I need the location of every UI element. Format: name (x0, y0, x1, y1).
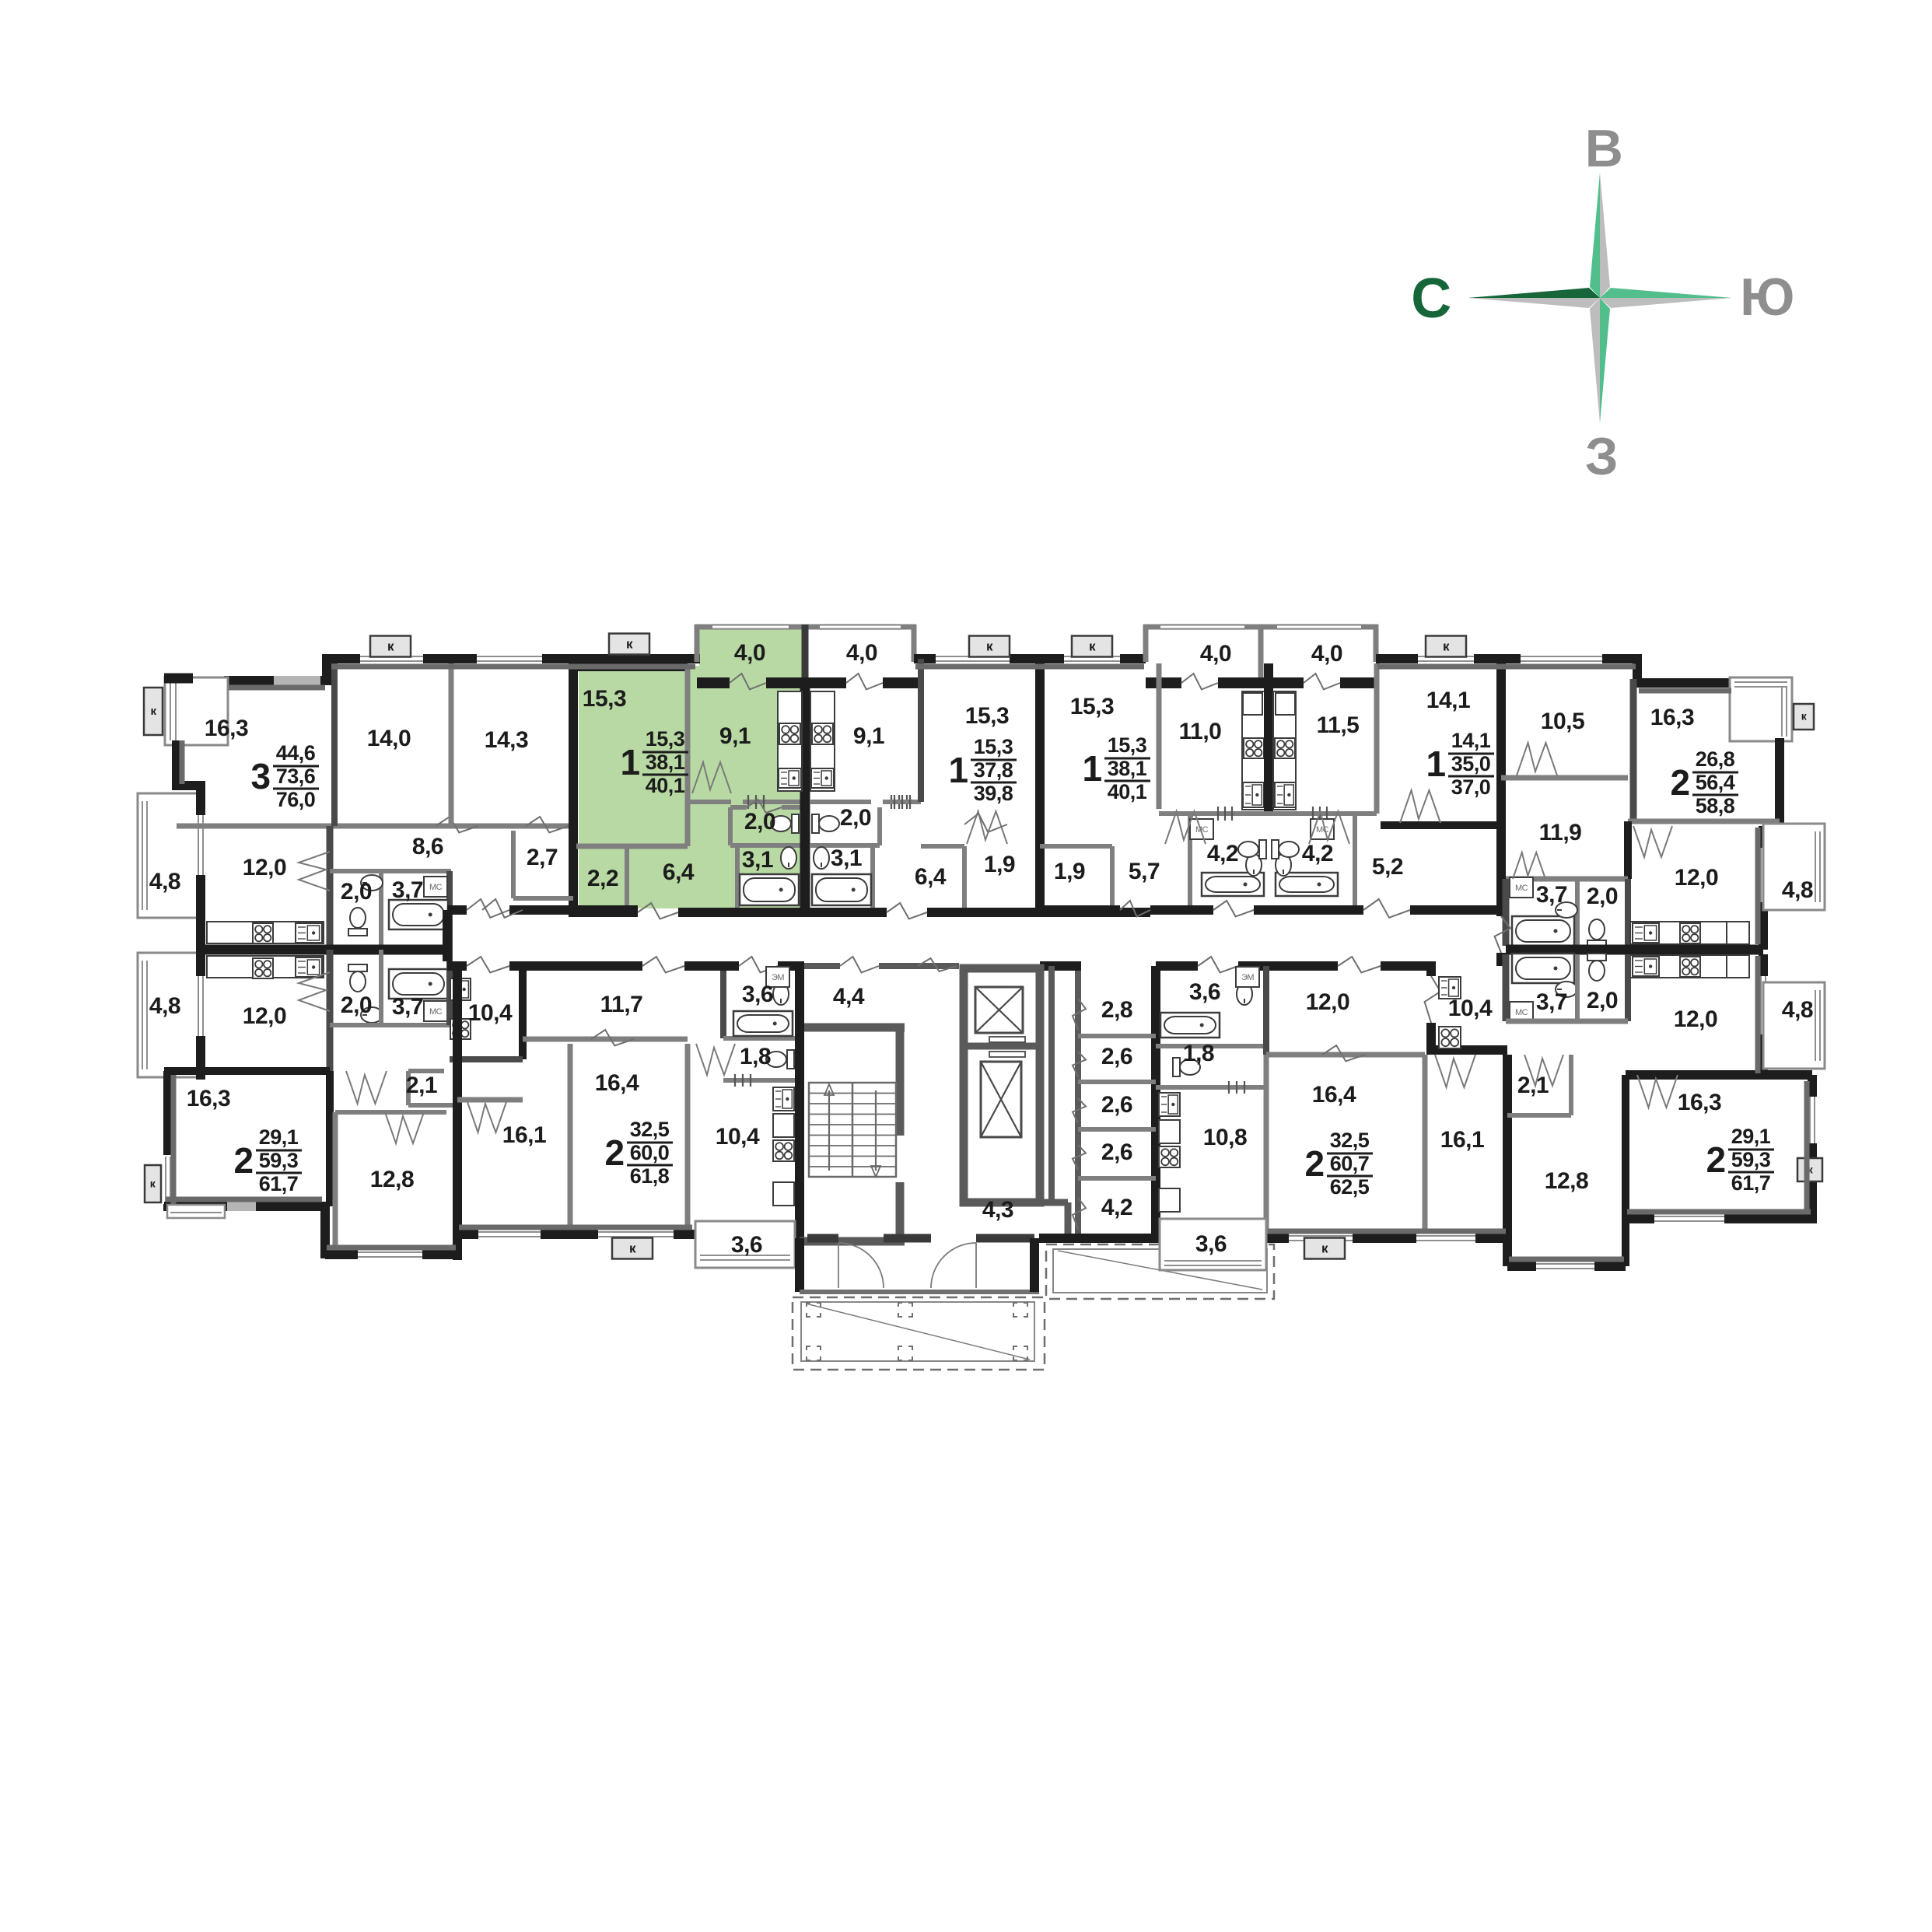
svg-text:1: 1 (948, 750, 968, 790)
svg-text:4,8: 4,8 (1782, 997, 1813, 1023)
svg-text:2,0: 2,0 (341, 992, 372, 1018)
svg-text:40,1: 40,1 (1108, 780, 1147, 803)
svg-text:2,6: 2,6 (1101, 1139, 1132, 1165)
svg-text:В: В (1585, 119, 1623, 178)
svg-text:2,1: 2,1 (1517, 1073, 1549, 1098)
svg-text:32,5: 32,5 (630, 1118, 670, 1141)
svg-text:3,6: 3,6 (731, 1232, 762, 1258)
svg-text:1,8: 1,8 (1183, 1041, 1214, 1066)
svg-text:МС: МС (1515, 1008, 1528, 1017)
svg-text:16,3: 16,3 (187, 1086, 230, 1111)
svg-text:2,6: 2,6 (1101, 1044, 1132, 1069)
svg-text:4,0: 4,0 (1311, 641, 1342, 667)
svg-text:2,0: 2,0 (744, 809, 775, 835)
svg-text:МС: МС (429, 883, 443, 892)
svg-text:к: к (629, 1241, 636, 1255)
svg-text:3: 3 (250, 756, 270, 796)
svg-text:3,6: 3,6 (742, 982, 773, 1007)
svg-text:61,7: 61,7 (259, 1172, 299, 1195)
svg-text:4,2: 4,2 (1101, 1195, 1132, 1220)
svg-text:9,1: 9,1 (719, 723, 751, 749)
svg-text:15,3: 15,3 (583, 686, 626, 712)
svg-text:10,4: 10,4 (716, 1124, 760, 1150)
svg-text:14,0: 14,0 (367, 726, 411, 751)
svg-text:2: 2 (1304, 1143, 1324, 1184)
svg-text:2,6: 2,6 (1101, 1092, 1132, 1118)
svg-text:2,0: 2,0 (1587, 884, 1618, 909)
svg-text:29,1: 29,1 (259, 1125, 299, 1149)
svg-text:МС: МС (1316, 825, 1329, 835)
svg-text:58,8: 58,8 (1696, 794, 1735, 817)
svg-text:39,8: 39,8 (974, 782, 1013, 805)
svg-text:2,7: 2,7 (527, 845, 558, 870)
svg-text:11,9: 11,9 (1539, 820, 1582, 845)
svg-text:62,5: 62,5 (1330, 1175, 1370, 1199)
svg-text:10,8: 10,8 (1203, 1125, 1247, 1150)
svg-text:5,7: 5,7 (1129, 859, 1160, 884)
svg-text:15,3: 15,3 (1070, 694, 1114, 719)
svg-text:4,8: 4,8 (1782, 877, 1813, 903)
svg-text:59,3: 59,3 (259, 1149, 299, 1172)
svg-text:3,7: 3,7 (392, 877, 423, 903)
svg-text:Ю: Ю (1740, 268, 1794, 327)
svg-text:2,0: 2,0 (1587, 988, 1618, 1013)
svg-text:4,2: 4,2 (1207, 841, 1238, 866)
svg-text:4,0: 4,0 (846, 640, 877, 666)
svg-text:60,7: 60,7 (1330, 1152, 1370, 1175)
svg-text:56,4: 56,4 (1696, 771, 1735, 794)
svg-text:4,8: 4,8 (149, 869, 180, 894)
svg-text:ЭМ: ЭМ (772, 973, 784, 982)
svg-text:3,6: 3,6 (1189, 979, 1220, 1005)
svg-text:15,3: 15,3 (646, 727, 685, 751)
svg-text:16,3: 16,3 (1678, 1090, 1721, 1115)
svg-text:6,4: 6,4 (663, 859, 695, 885)
svg-text:40,1: 40,1 (646, 774, 685, 797)
svg-text:12,0: 12,0 (1306, 989, 1349, 1015)
svg-text:61,7: 61,7 (1731, 1171, 1771, 1195)
svg-text:38,1: 38,1 (1108, 757, 1147, 780)
svg-text:12,0: 12,0 (243, 1003, 286, 1029)
svg-text:к: к (986, 639, 993, 653)
svg-text:16,1: 16,1 (1440, 1127, 1484, 1153)
svg-text:2: 2 (233, 1140, 253, 1181)
svg-text:15,3: 15,3 (1108, 733, 1147, 757)
svg-text:к: к (626, 636, 633, 651)
svg-text:12,8: 12,8 (1545, 1168, 1588, 1194)
svg-text:26,8: 26,8 (1696, 747, 1735, 771)
svg-text:11,5: 11,5 (1317, 712, 1360, 738)
svg-text:к: к (387, 639, 394, 653)
svg-text:8,6: 8,6 (412, 834, 443, 859)
svg-text:12,0: 12,0 (1675, 865, 1718, 891)
svg-text:к: к (150, 705, 156, 718)
svg-text:11,7: 11,7 (600, 992, 643, 1017)
svg-text:4,2: 4,2 (1302, 841, 1333, 866)
svg-text:4,0: 4,0 (734, 640, 765, 666)
svg-text:73,6: 73,6 (276, 765, 316, 788)
svg-text:29,1: 29,1 (1731, 1125, 1771, 1148)
svg-text:15,3: 15,3 (965, 703, 1009, 729)
svg-text:2: 2 (1706, 1139, 1725, 1180)
svg-text:2: 2 (1670, 762, 1689, 803)
svg-text:14,1: 14,1 (1426, 688, 1470, 713)
svg-text:61,8: 61,8 (630, 1164, 670, 1188)
svg-text:2: 2 (604, 1132, 624, 1173)
svg-text:16,3: 16,3 (205, 716, 248, 741)
svg-text:С: С (1411, 268, 1451, 330)
svg-text:12,0: 12,0 (1674, 1006, 1717, 1032)
svg-text:38,1: 38,1 (646, 751, 685, 774)
svg-text:3,7: 3,7 (1536, 989, 1567, 1015)
svg-text:3,7: 3,7 (392, 994, 423, 1020)
svg-text:10,4: 10,4 (468, 1000, 513, 1026)
svg-text:11,0: 11,0 (1179, 719, 1222, 744)
svg-text:60,0: 60,0 (630, 1141, 670, 1164)
svg-text:15,3: 15,3 (974, 735, 1013, 758)
svg-text:16,1: 16,1 (502, 1122, 546, 1148)
svg-text:3,1: 3,1 (742, 847, 773, 873)
svg-text:6,4: 6,4 (915, 864, 947, 890)
svg-text:16,4: 16,4 (1312, 1082, 1356, 1108)
svg-text:1,9: 1,9 (984, 852, 1015, 877)
svg-text:1,9: 1,9 (1054, 859, 1085, 884)
svg-text:2,0: 2,0 (840, 805, 871, 831)
svg-text:3,6: 3,6 (1195, 1231, 1227, 1257)
svg-text:16,4: 16,4 (595, 1070, 639, 1096)
svg-text:12,8: 12,8 (370, 1167, 414, 1192)
svg-text:10,5: 10,5 (1541, 709, 1584, 734)
svg-text:МС: МС (429, 1007, 443, 1017)
svg-text:4,3: 4,3 (982, 1197, 1013, 1223)
svg-text:37,0: 37,0 (1451, 775, 1491, 799)
svg-text:2,8: 2,8 (1101, 997, 1132, 1023)
svg-text:9,1: 9,1 (853, 723, 884, 749)
svg-text:1: 1 (620, 742, 639, 782)
svg-text:14,3: 14,3 (485, 727, 528, 753)
svg-text:3,1: 3,1 (831, 845, 862, 871)
svg-text:З: З (1585, 427, 1618, 486)
svg-text:5,2: 5,2 (1372, 854, 1403, 880)
svg-text:к: к (1443, 639, 1450, 653)
svg-text:4,8: 4,8 (149, 993, 180, 1019)
svg-text:1,8: 1,8 (740, 1044, 771, 1069)
svg-text:3,7: 3,7 (1536, 882, 1567, 908)
svg-text:2,0: 2,0 (341, 879, 372, 905)
svg-text:12,0: 12,0 (243, 855, 286, 880)
svg-text:59,3: 59,3 (1731, 1148, 1771, 1171)
svg-text:44,6: 44,6 (276, 741, 316, 765)
svg-text:2,2: 2,2 (587, 866, 618, 891)
svg-text:ЭМ: ЭМ (1241, 973, 1254, 982)
svg-text:к: к (1089, 639, 1096, 653)
svg-text:1: 1 (1426, 744, 1445, 784)
svg-text:14,1: 14,1 (1451, 729, 1491, 752)
svg-text:к: к (1321, 1241, 1328, 1255)
svg-text:35,0: 35,0 (1451, 752, 1491, 775)
svg-text:76,0: 76,0 (276, 788, 316, 811)
svg-text:32,5: 32,5 (1330, 1129, 1370, 1152)
svg-text:10,4: 10,4 (1448, 996, 1493, 1021)
svg-text:4,0: 4,0 (1200, 641, 1231, 667)
svg-text:37,8: 37,8 (974, 758, 1013, 782)
svg-text:16,3: 16,3 (1650, 705, 1694, 730)
svg-text:1: 1 (1082, 748, 1101, 789)
svg-text:МС: МС (1515, 884, 1528, 893)
svg-text:2,1: 2,1 (406, 1073, 437, 1098)
svg-text:4,4: 4,4 (833, 984, 865, 1010)
